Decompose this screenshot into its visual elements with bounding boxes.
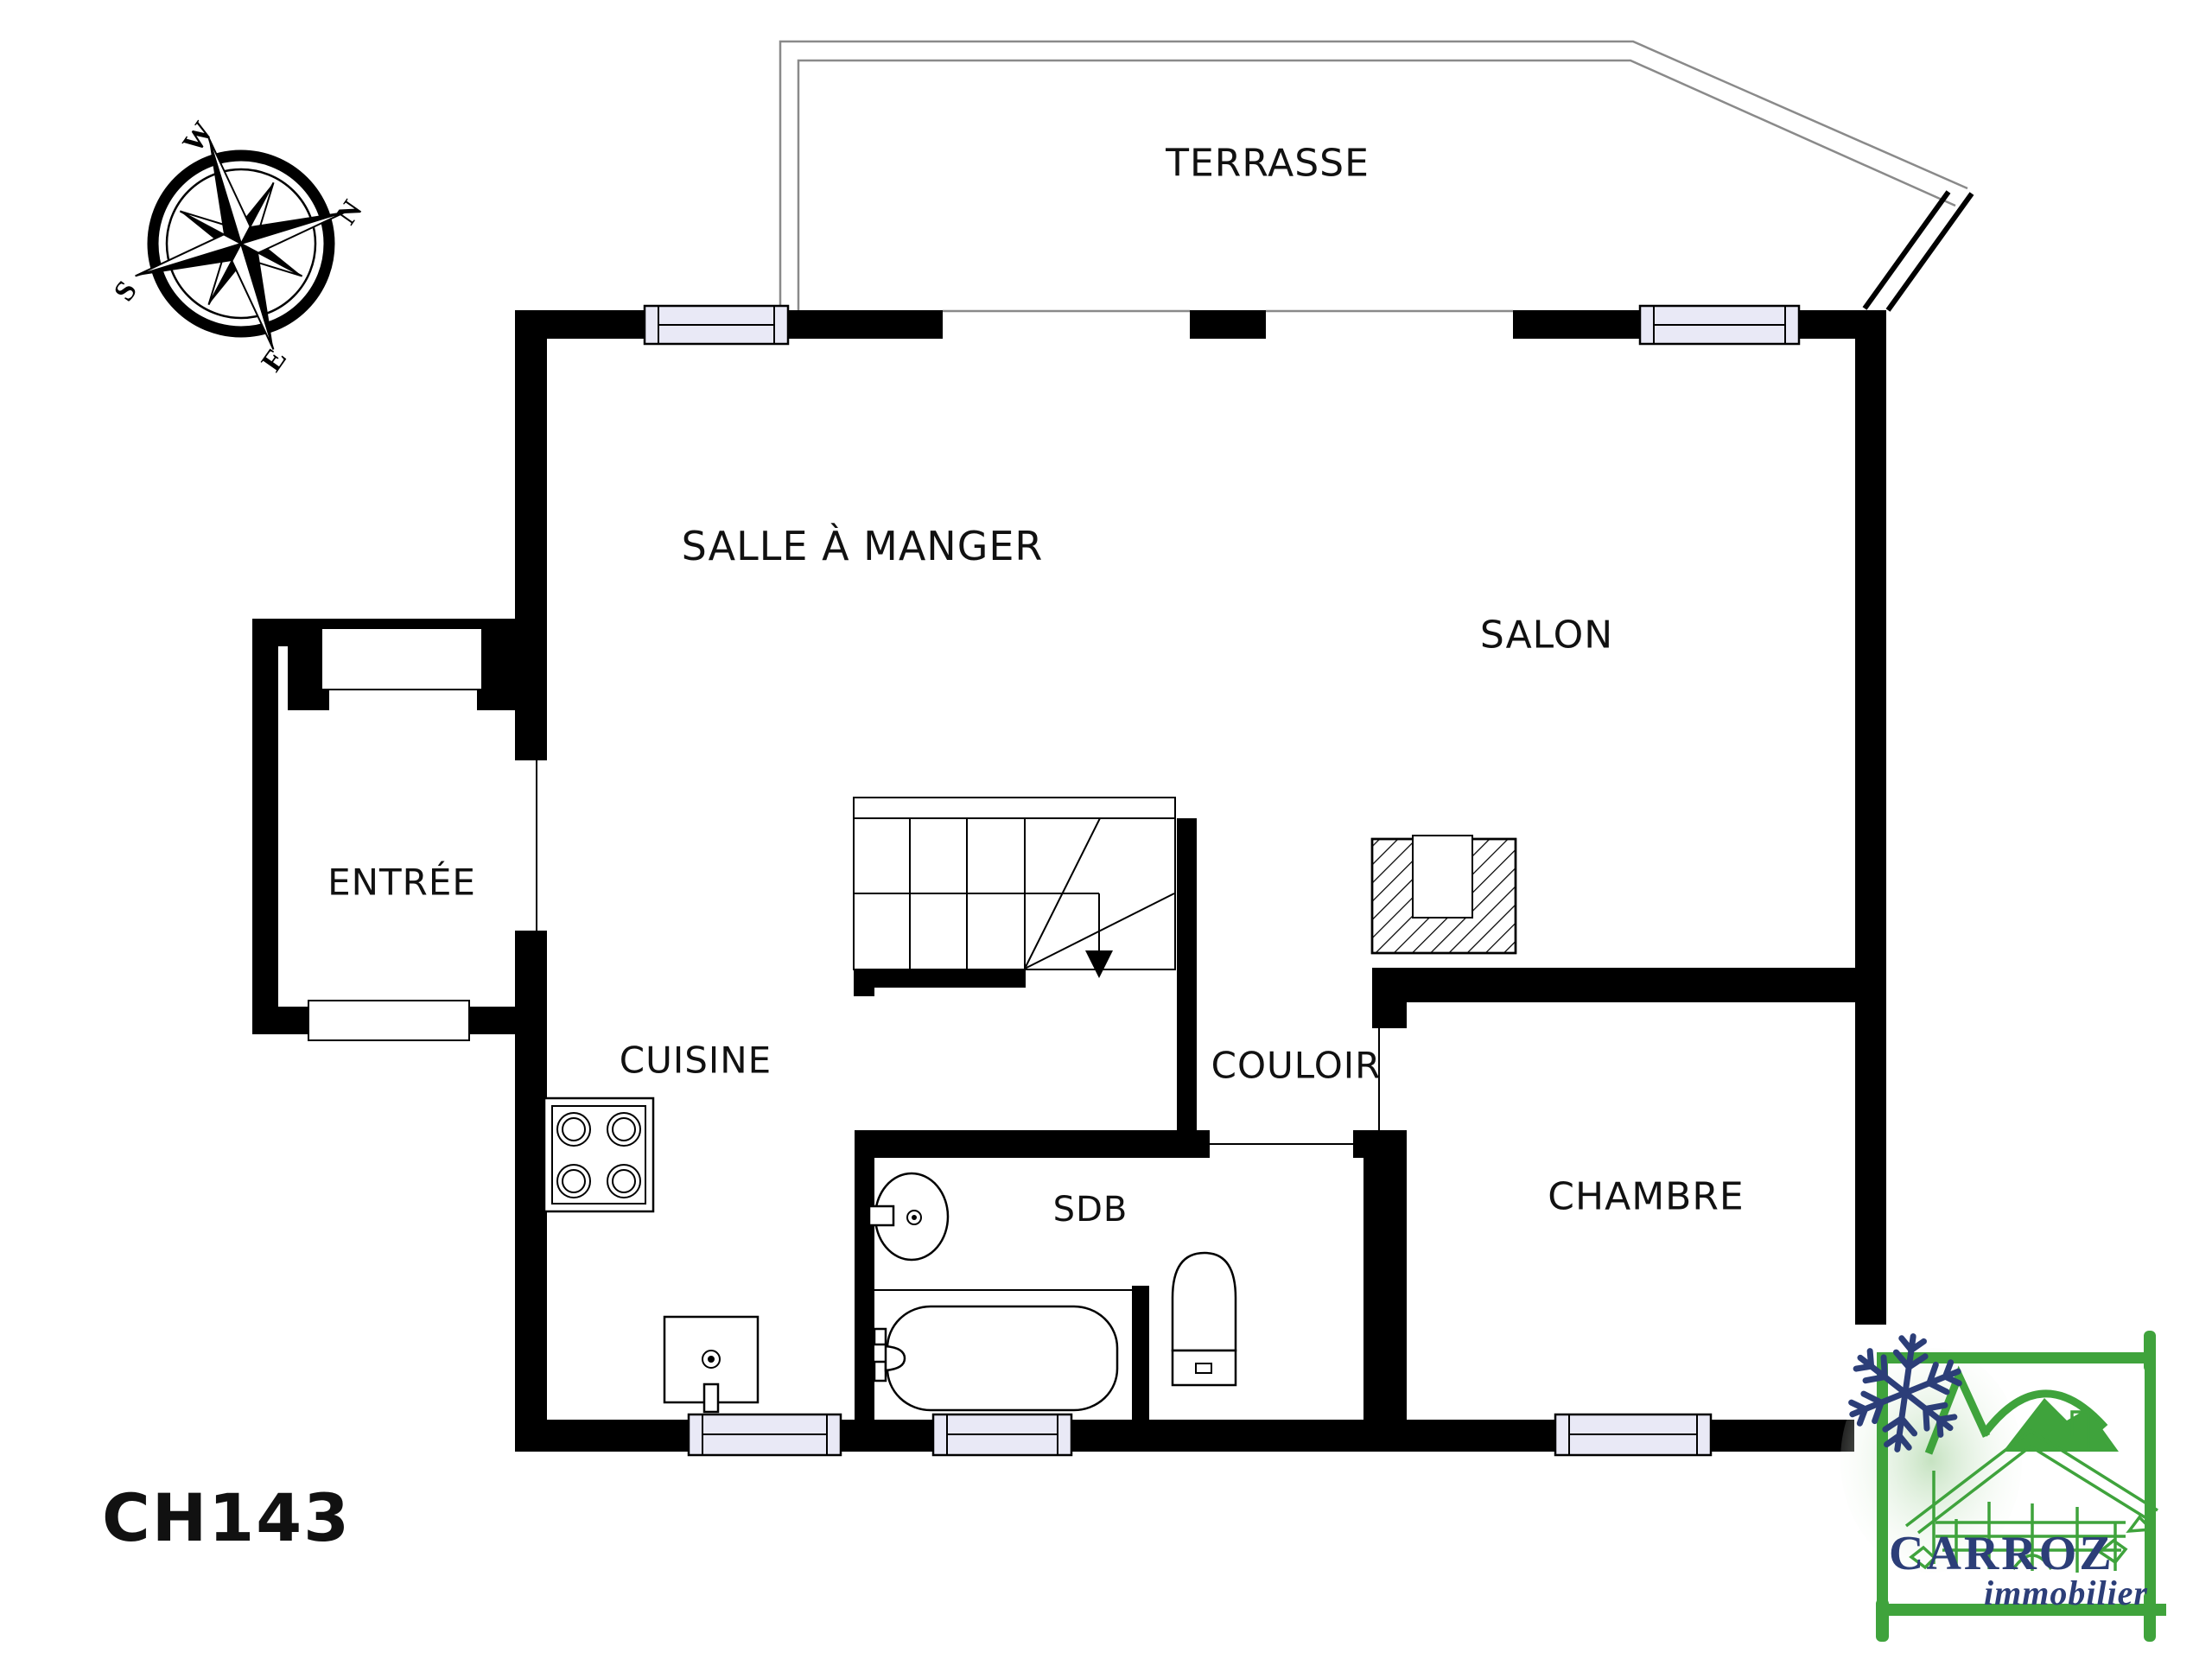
terrace-outline (780, 41, 1972, 311)
stove-icon (544, 1098, 653, 1211)
stairs-icon (854, 798, 1175, 978)
compass-icon: W N S E (103, 105, 379, 382)
floor-plan: W N S E (0, 0, 2212, 1659)
room-label-sdb: SDB (1053, 1190, 1128, 1230)
front-door-icon (308, 1001, 469, 1040)
room-label-entree: ENTRÉE (327, 861, 476, 904)
fireplace-icon (1372, 836, 1516, 953)
room-label-salon: SALON (1480, 613, 1613, 658)
window-icon (1640, 306, 1799, 344)
room-label-terrasse: TERRASSE (1166, 142, 1370, 186)
bathtub-icon (874, 1306, 1117, 1410)
window-icon (1555, 1414, 1711, 1455)
room-label-salle-a-manger: SALLE À MANGER (682, 523, 1044, 569)
floor-plan-drawing: W N S E (0, 0, 2212, 1659)
logo-agency-tagline: immobilier (1984, 1573, 2148, 1613)
kitchen-sink-icon (664, 1317, 758, 1412)
entry-porch-door-icon (321, 628, 482, 690)
reference-label: CH143 (102, 1479, 351, 1556)
window-icon (689, 1414, 841, 1455)
compass-south-label: S (108, 276, 143, 308)
room-label-cuisine: CUISINE (620, 1039, 772, 1082)
room-label-chambre: CHAMBRE (1548, 1175, 1744, 1219)
compass-east-label: E (256, 343, 293, 378)
room-label-couloir: COULOIR (1211, 1045, 1382, 1087)
compass-north-label: N (330, 194, 369, 231)
window-icon (933, 1414, 1071, 1455)
toilet-icon (1173, 1253, 1236, 1385)
window-icon (645, 306, 788, 344)
washbasin-icon (869, 1173, 948, 1260)
